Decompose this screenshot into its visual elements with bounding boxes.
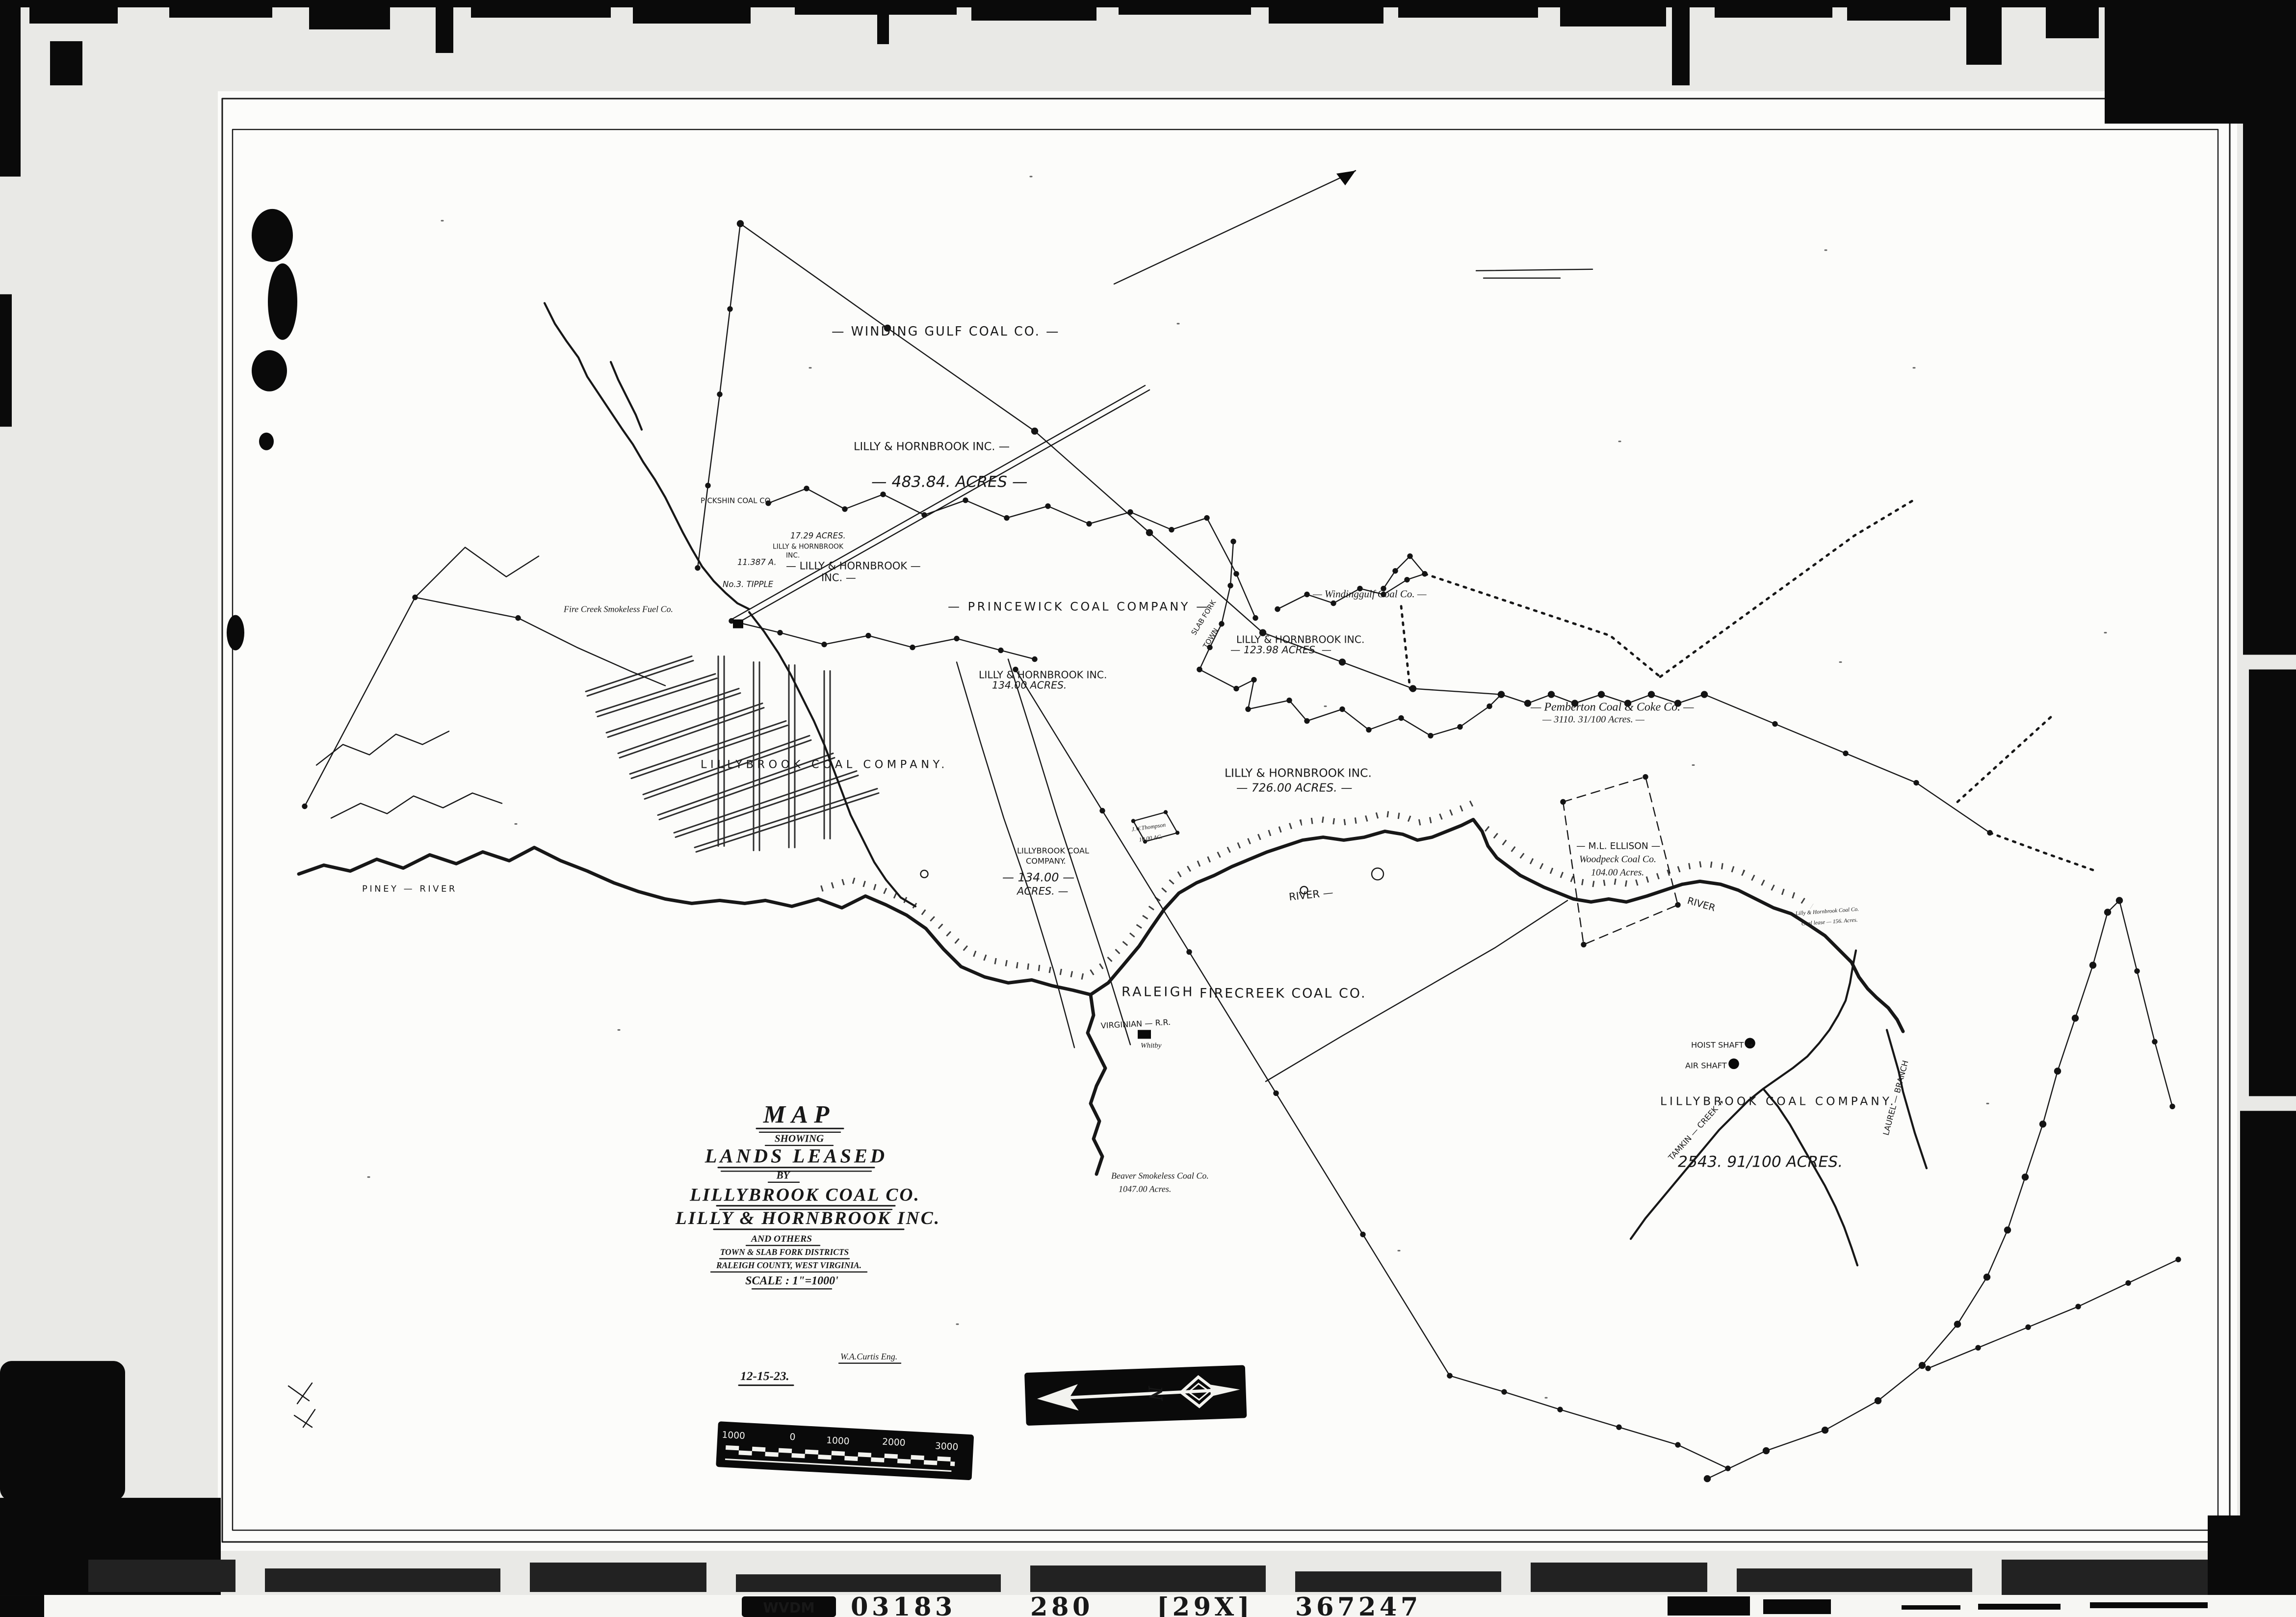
- survey-corner-dot: [1339, 658, 1346, 665]
- survey-corner-dot: [2039, 1121, 2046, 1127]
- survey-corner-dot: [1954, 1321, 1961, 1328]
- survey-corner-dot: [2116, 898, 2122, 903]
- scale-tick: 3000: [935, 1441, 958, 1452]
- survey-corner-dot: [1843, 751, 1848, 756]
- survey-corner-dot: [737, 220, 744, 227]
- survey-corner-dot: [1772, 721, 1777, 727]
- survey-corner-dot: [1304, 718, 1309, 724]
- survey-corner-dot: [1045, 503, 1050, 509]
- title-scale: SCALE : 1"=1000': [745, 1275, 838, 1287]
- survey-corner-dot: [1701, 692, 1707, 697]
- air-shaft-dot: [1728, 1059, 1739, 1069]
- compass-rose: N: [1024, 1365, 1247, 1426]
- survey-corner-dot: [1704, 1475, 1711, 1482]
- tipple-symbol: [733, 620, 743, 628]
- survey-corner-dot: [1675, 902, 1680, 908]
- survey-corner-dot: [1339, 706, 1345, 712]
- survey-corner-dot: [1557, 1407, 1563, 1412]
- map-label: — 123.98 ACRES. —: [1230, 644, 1331, 656]
- survey-corner-dot: [1725, 1465, 1730, 1471]
- survey-corner-dot: [1146, 529, 1153, 536]
- map-label: 1047.00 Acres.: [1119, 1184, 1171, 1194]
- survey-corner-dot: [695, 565, 700, 571]
- map-label: LILLY & HORNBROOK: [773, 543, 844, 551]
- map-label: — PRINCEWICK COAL COMPANY —: [948, 600, 1210, 614]
- title-line: BY: [776, 1169, 791, 1181]
- survey-corner-dot: [1822, 1427, 1828, 1434]
- survey-corner-dot: [777, 630, 783, 635]
- survey-corner-dot: [1616, 1424, 1621, 1430]
- survey-corner-dot: [1245, 706, 1251, 712]
- survey-corner-dot: [515, 615, 521, 621]
- map-label: LILLY & HORNBROOK INC.: [1225, 766, 1372, 780]
- survey-corner-dot: [2125, 1280, 2131, 1286]
- survey-corner-dot: [842, 506, 847, 512]
- map-label: COMPANY.: [1026, 856, 1066, 865]
- map-label: — Pemberton Coal & Coke Co. —: [1530, 701, 1694, 714]
- survey-corner-dot: [2175, 1257, 2181, 1262]
- survey-corner-dot: [1422, 571, 1427, 576]
- survey-corner-dot: [1457, 724, 1462, 730]
- map-label: — 483.84. ACRES —: [871, 473, 1028, 491]
- frame-number: 280: [1030, 1592, 1094, 1617]
- survey-corner-dot: [2054, 1068, 2061, 1074]
- survey-corner-dot: [2025, 1324, 2031, 1330]
- survey-corner-dot: [1175, 831, 1179, 835]
- map-label: PINEY — RIVER: [362, 884, 457, 894]
- survey-corner-dot: [1560, 799, 1565, 805]
- title-date: 12-15-23.: [740, 1369, 789, 1383]
- frame-number: [29X]: [1157, 1592, 1253, 1617]
- survey-corner-dot: [1875, 1397, 1881, 1404]
- survey-corner-dot: [1169, 527, 1174, 532]
- survey-corner-dot: [2089, 962, 2096, 968]
- map-label: ACRES. —: [1016, 885, 1069, 897]
- frame-number: 367247: [1295, 1592, 1422, 1617]
- scale-tick: 0: [789, 1432, 796, 1443]
- survey-corner-dot: [1273, 1091, 1278, 1096]
- map-label: PICKSHIN COAL CO.: [701, 496, 773, 505]
- survey-corner-dot: [2004, 1226, 2011, 1233]
- archive-label: WVDM: [763, 1600, 814, 1616]
- survey-corner-dot: [1398, 715, 1404, 721]
- survey-corner-dot: [2169, 1104, 2175, 1109]
- survey-corner-dot: [1648, 691, 1655, 698]
- survey-corner-dot: [1275, 606, 1280, 612]
- microfilm-scan: — WINDING GULF COAL CO. — LILLY & HORNBR…: [0, 0, 2296, 1617]
- survey-corner-dot: [1099, 808, 1105, 813]
- map-label: No.3. TIPPLE: [723, 580, 774, 589]
- map-label: LILLYBROOK COAL: [1017, 846, 1089, 855]
- survey-corner-dot: [2152, 1039, 2157, 1044]
- survey-corner-dot: [880, 492, 886, 497]
- map-label: 11.387 A.: [737, 558, 777, 567]
- map-label: FIRECREEK COAL CO.: [1200, 986, 1367, 1001]
- title-line: TOWN & SLAB FORK DISTRICTS: [720, 1248, 849, 1257]
- map-label: — M.L. ELLISON —: [1576, 841, 1660, 851]
- frame-number: 03183: [851, 1592, 956, 1617]
- film-id-strip: WVDM 03183 280 [29X] 367247: [0, 1592, 2296, 1617]
- map-label: LILLYBROOK COAL COMPANY.: [701, 758, 948, 771]
- map-label: — WINDING GULF COAL CO. —: [832, 324, 1060, 339]
- survey-corner-dot: [1487, 704, 1492, 709]
- map-label: LILLY & HORNBROOK INC. —: [854, 441, 1010, 453]
- map-label: — 134.00 —: [1002, 870, 1074, 884]
- map-label: 17.29 ACRES.: [790, 531, 846, 541]
- survey-corner-dot: [1219, 621, 1224, 626]
- map-label: — LILLY & HORNBROOK —: [786, 560, 921, 572]
- survey-corner-dot: [1763, 1447, 1770, 1454]
- survey-corner-dot: [1197, 667, 1202, 672]
- station-symbol: [1138, 1030, 1151, 1039]
- survey-corner-dot: [1331, 600, 1336, 606]
- survey-corner-dot: [1360, 1232, 1365, 1237]
- survey-corner-dot: [1675, 1442, 1680, 1447]
- survey-corner-dot: [1987, 830, 1992, 835]
- survey-corner-dot: [1643, 774, 1648, 780]
- survey-corner-dot: [865, 633, 871, 638]
- title-line: MAP: [763, 1101, 835, 1128]
- survey-corner-dot: [1233, 571, 1239, 576]
- survey-corner-dot: [1498, 691, 1505, 698]
- title-line: AND OTHERS: [750, 1234, 812, 1244]
- survey-corner-dot: [1409, 685, 1416, 692]
- survey-corner-dot: [1252, 615, 1258, 621]
- survey-corner-dot: [1983, 1274, 1990, 1280]
- title-line: LILLYBROOK COAL CO.: [689, 1185, 920, 1205]
- survey-corner-dot: [1548, 691, 1555, 698]
- survey-corner-dot: [2104, 909, 2111, 915]
- survey-corner-dot: [1304, 592, 1309, 597]
- survey-corner-dot: [1086, 521, 1092, 526]
- survey-corner-dot: [727, 306, 732, 312]
- survey-corner-dot: [1501, 1389, 1507, 1394]
- survey-corner-dot: [302, 804, 307, 809]
- survey-corner-dot: [2022, 1174, 2029, 1180]
- survey-corner-dot: [1164, 810, 1168, 814]
- survey-corner-dot: [821, 642, 827, 647]
- survey-corner-dot: [1004, 515, 1009, 521]
- survey-corner-dot: [1230, 539, 1236, 544]
- survey-corner-dot: [1186, 949, 1192, 955]
- map-sheet: [218, 91, 2237, 1551]
- title-line: LANDS LEASED: [704, 1145, 887, 1167]
- map-label: — 726.00 ACRES. —: [1236, 781, 1352, 795]
- survey-corner-dot: [2134, 968, 2139, 974]
- survey-corner-dot: [2072, 1015, 2079, 1021]
- map-label: INC. —: [821, 572, 856, 584]
- survey-corner-dot: [910, 645, 915, 650]
- map-label: Woodpeck Coal Co.: [1579, 854, 1656, 864]
- survey-corner-dot: [1204, 515, 1209, 521]
- map-label: 134.00 ACRES.: [992, 679, 1067, 691]
- map-svg: — WINDING GULF COAL CO. — LILLY & HORNBR…: [0, 0, 2296, 1617]
- map-label: 2543. 91/100 ACRES.: [1678, 1153, 1843, 1171]
- map-label: Whitby: [1141, 1042, 1162, 1049]
- survey-corner-dot: [1428, 733, 1433, 738]
- survey-corner-dot: [963, 497, 968, 503]
- survey-corner-dot: [1581, 942, 1586, 947]
- map-label: HOIST SHAFT →: [1691, 1040, 1753, 1049]
- north-letter: N: [1144, 1385, 1167, 1402]
- survey-corner-dot: [1447, 1373, 1452, 1378]
- survey-corner-dot: [1233, 686, 1239, 691]
- map-label: — 3110. 31/100 Acres. —: [1542, 714, 1645, 725]
- survey-corner-dot: [717, 391, 722, 397]
- survey-corner-dot: [954, 636, 959, 641]
- map-label: — Windinggulf Coal Co. —: [1312, 588, 1427, 600]
- survey-corner-dot: [1251, 677, 1256, 682]
- engineer-signature: W.A.Curtis Eng.: [840, 1352, 897, 1361]
- survey-corner-dot: [1407, 553, 1412, 559]
- scale-tick: 2000: [882, 1437, 906, 1448]
- map-label: Beaver Smokeless Coal Co.: [1111, 1171, 1209, 1180]
- scale-tick: 1000: [722, 1430, 745, 1441]
- survey-corner-dot: [1366, 727, 1371, 732]
- survey-corner-dot: [1404, 577, 1409, 582]
- survey-corner-dot: [1127, 509, 1133, 515]
- survey-corner-dot: [998, 648, 1003, 653]
- survey-corner-dot: [2075, 1304, 2081, 1309]
- survey-corner-dot: [1032, 656, 1037, 662]
- survey-corner-dot: [921, 512, 927, 518]
- survey-corner-dot: [1392, 568, 1398, 574]
- title-line: RALEIGH COUNTY, WEST VIRGINIA.: [716, 1261, 861, 1270]
- map-label: AIR SHAFT: [1685, 1061, 1727, 1070]
- title-line: LILLY & HORNBROOK INC.: [675, 1208, 940, 1228]
- survey-corner-dot: [1913, 780, 1919, 785]
- map-label: 104.00 Acres.: [1591, 867, 1644, 878]
- map-label: Fire Creek Smokeless Fuel Co.: [563, 604, 673, 614]
- title-line: SHOWING: [775, 1132, 824, 1144]
- survey-corner-dot: [705, 483, 710, 488]
- survey-corner-dot: [1031, 428, 1038, 435]
- map-label: RALEIGH: [1122, 984, 1195, 999]
- survey-corner-dot: [804, 486, 809, 491]
- survey-corner-dot: [1227, 583, 1233, 588]
- map-label: LILLYBROOK COAL COMPANY.: [1660, 1094, 1897, 1108]
- survey-corner-dot: [412, 595, 417, 600]
- survey-corner-dot: [1925, 1365, 1931, 1371]
- survey-corner-dot: [1286, 698, 1292, 703]
- survey-corner-dot: [1975, 1345, 1981, 1350]
- survey-corner-dot: [1131, 819, 1135, 823]
- map-label: INC.: [786, 552, 800, 560]
- survey-corner-dot: [1919, 1362, 1926, 1369]
- survey-corner-dot: [1598, 691, 1605, 698]
- scale-tick: 1000: [826, 1435, 850, 1447]
